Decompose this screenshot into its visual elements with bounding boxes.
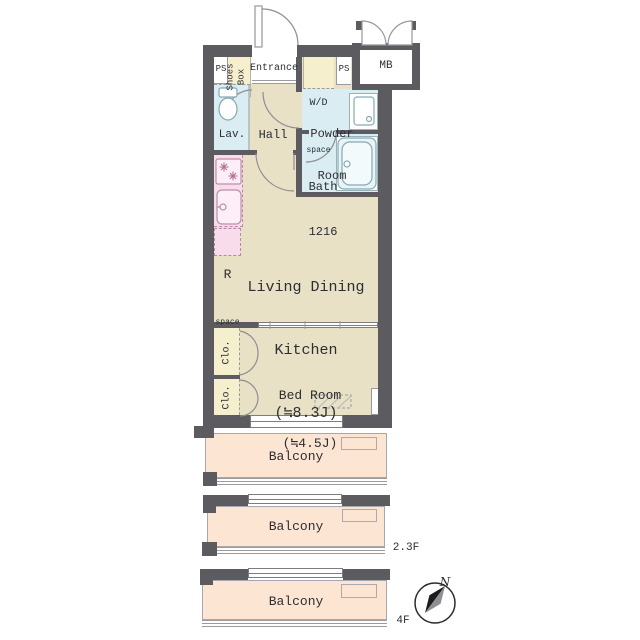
wall: [194, 426, 214, 438]
entrance-threshold: [252, 45, 297, 57]
wall: [203, 495, 216, 513]
balcony-2-label: Balcony: [236, 520, 356, 535]
balcony-1-label: Balcony: [236, 450, 356, 465]
hall-label: Hall: [251, 129, 295, 143]
entrance-door-leaf: [255, 6, 262, 47]
wall: [343, 569, 390, 580]
meter-box-door-right: [388, 21, 412, 45]
entrance-door-arc: [262, 9, 298, 45]
meter-box-label: MB: [360, 60, 412, 73]
balcony-3-label: Balcony: [236, 595, 356, 610]
wall: [356, 21, 362, 30]
balcony-2-window: [248, 494, 342, 504]
wall: [200, 569, 213, 585]
lavatory-label: Lav.: [211, 129, 253, 142]
floor-bottom-label: 4F: [390, 615, 416, 628]
compass-north-label: N: [437, 576, 453, 590]
balcony-3-railing: [202, 620, 387, 628]
wall: [342, 495, 390, 506]
entrance-label: Entrance: [248, 63, 300, 75]
wall: [410, 21, 416, 30]
balcony-2-railing: [207, 547, 385, 555]
floor-plan: PS Shoes Box Entrance W/D space PS MB La…: [0, 0, 640, 640]
balcony-pillar: [202, 542, 217, 556]
closet-lower-label: Clo.: [214, 381, 240, 413]
wall: [297, 45, 352, 57]
ps-right-label: PS: [331, 64, 357, 74]
closet-upper-label: Clo.: [214, 334, 240, 370]
meter-box-door-left: [362, 21, 386, 45]
wall: [203, 45, 214, 428]
kitchen-counter: [214, 155, 243, 227]
floor-mid-label: 2.3F: [388, 542, 424, 555]
wall: [214, 150, 257, 155]
balcony-pillar: [203, 472, 217, 486]
balcony-3-window: [248, 568, 343, 578]
